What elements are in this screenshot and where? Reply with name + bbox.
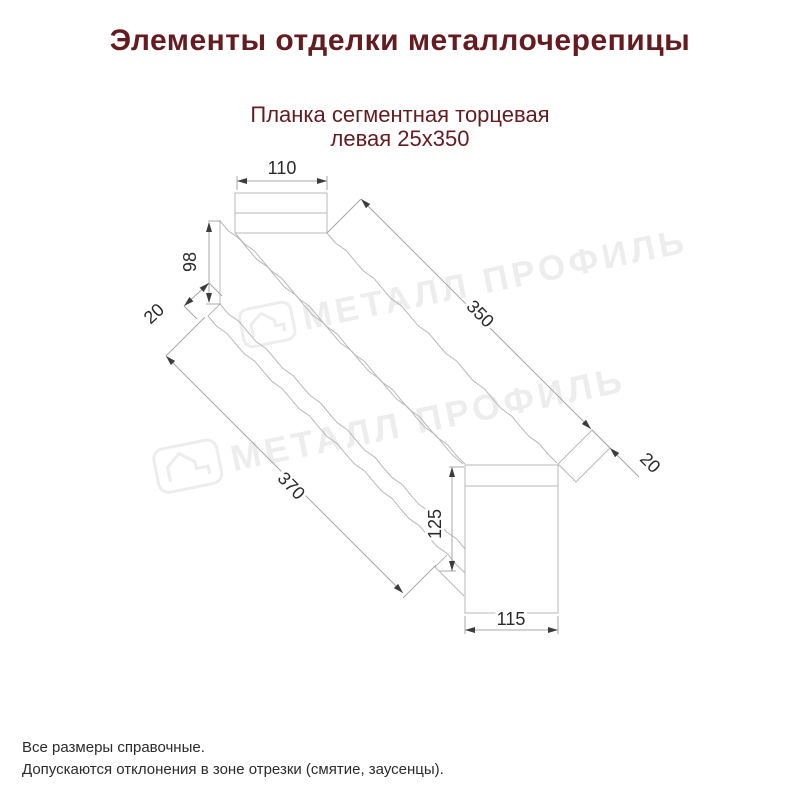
dim-left-fold-label: 20 [140,299,168,327]
house-logo-icon [238,301,297,349]
watermark-text: МЕТАЛЛ ПРОФИЛЬ [299,221,691,337]
footnote-line1: Все размеры справочные. [22,737,444,759]
watermark-lower: МЕТАЛЛ ПРОФИЛЬ [152,356,629,494]
dim-bottom-length-label: 370 [274,468,309,504]
dim-right-fold-label: 20 [636,449,664,477]
technical-drawing: МЕТАЛЛ ПРОФИЛЬ МЕТАЛЛ ПРОФИЛЬ [0,0,800,800]
watermark-text: МЕТАЛЛ ПРОФИЛЬ [227,359,629,479]
end-face [465,465,558,613]
dim-end-width-label: 115 [497,609,526,629]
product-drawing-page: Элементы отделки металлочерепицы Планка … [0,0,800,800]
end-fold-top [558,430,610,482]
dim-end-height-label: 125 [425,509,445,539]
footnotes: Все размеры справочные. Допускаются откл… [22,737,444,781]
footnote-line2: Допускаются отклонения в зоне отрезки (с… [22,759,444,781]
dim-top-width-label: 110 [268,158,297,178]
watermark-upper: МЕТАЛЛ ПРОФИЛЬ [238,220,691,350]
house-logo-icon [152,438,223,494]
dim-left-height-label: 98 [180,252,200,272]
